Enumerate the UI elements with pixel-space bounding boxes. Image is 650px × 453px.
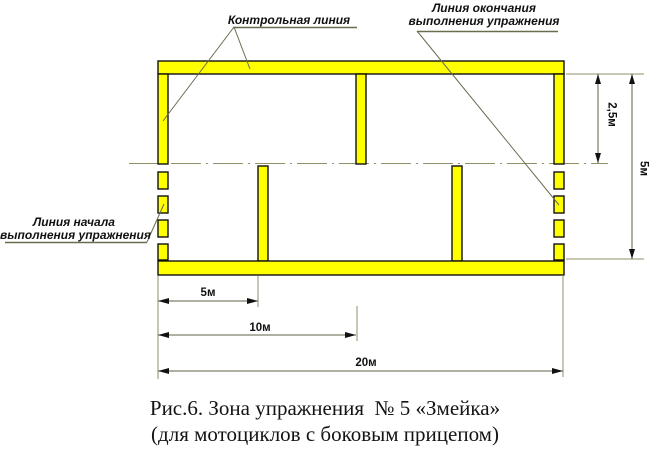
arrowhead-right-icon [552, 368, 563, 374]
right-gate-bar-bottom [452, 166, 462, 261]
finish-line-segment [554, 172, 564, 189]
control-line-label: Контрольная линия [225, 14, 353, 27]
finish-line-label-line2: выполнения упражнения [405, 15, 563, 28]
left-gate-bar-bottom [258, 166, 268, 261]
finish-line-label: Линия окончания выполнения упражнения [405, 2, 563, 28]
arrowhead-left-icon [158, 368, 169, 374]
arrowhead-up-icon [629, 74, 635, 84]
start-line-segment [158, 196, 168, 213]
figure: Контрольная линия Линия окончания выполн… [0, 0, 650, 453]
dim-value-10m: 10м [240, 322, 280, 334]
arrowhead-down-icon [595, 153, 601, 163]
middle-gate-bar-top [356, 74, 366, 164]
start-line-label-line2: выполнения упражнения [0, 229, 148, 242]
start-line-segment [158, 172, 168, 189]
start-line-segment [158, 244, 168, 260]
bottom-boundary-bar [158, 261, 564, 275]
top-control-line-bar [158, 61, 564, 74]
finish-line-segment [554, 244, 564, 260]
arrowhead-right-icon [345, 332, 356, 338]
dim-value-5m-bottom: 5м [188, 287, 228, 299]
finish-leader [417, 31, 559, 205]
arrowhead-down-icon [629, 249, 635, 259]
arrowhead-left-icon [158, 298, 169, 304]
figure-caption-line1: Рис.6. Зона упражнения № 5 «Змейка» [0, 395, 650, 421]
figure-caption-line2: (для мотоциклов с боковым прицепом) [0, 421, 650, 447]
arrowhead-left-icon [158, 332, 169, 338]
start-line-label: Линия начала выполнения упражнения [0, 216, 148, 242]
arrowhead-right-icon [247, 298, 258, 304]
dim-value-20m: 20м [346, 357, 386, 369]
finish-line-segment [554, 220, 564, 237]
left-gate-bar-top [158, 74, 168, 164]
arrowhead-up-icon [595, 74, 601, 84]
right-gate-bar-top [554, 74, 564, 164]
dim-value-2-5m: 2,5м [605, 98, 618, 132]
start-line-segment [158, 220, 168, 237]
dim-value-5m-vertical: 5м [637, 157, 650, 181]
